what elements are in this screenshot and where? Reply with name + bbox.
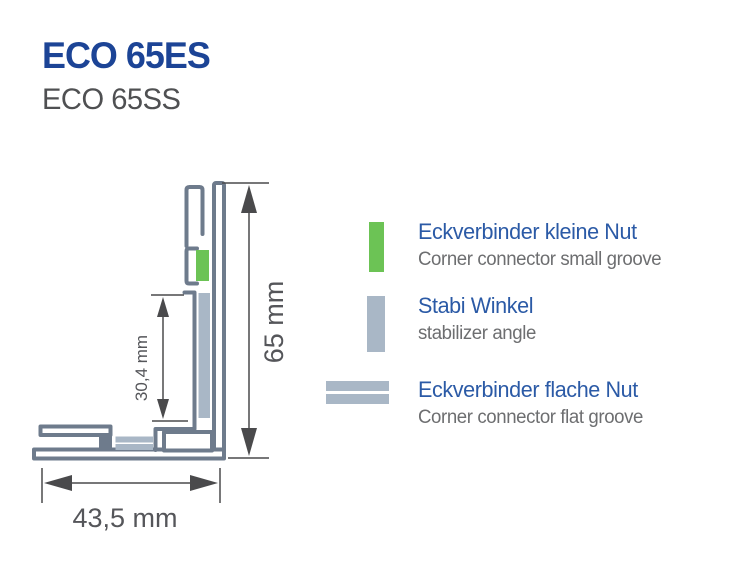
legend-title: Stabi Winkel — [418, 292, 722, 320]
flat-groove-connector-bottom — [116, 444, 154, 450]
profile-right-wall — [214, 183, 224, 458]
profile-small-groove-bracket — [187, 249, 198, 284]
small-groove-connector — [196, 250, 209, 281]
legend-subtitle: Corner connector flat groove — [418, 407, 722, 430]
profile-top-channel — [187, 187, 203, 246]
legend-title: Eckverbinder flache Nut — [418, 376, 722, 404]
flat-groove-connector-swatch — [326, 381, 389, 405]
stabilizer-angle-swatch — [367, 296, 385, 352]
profile-bottom-box — [164, 432, 212, 451]
stabilizer-angle — [199, 293, 211, 418]
dimension-30mm-label: 30,4 mm — [132, 335, 151, 401]
dimension-65mm: 65 mm — [222, 183, 289, 458]
flat-groove-connector-top — [116, 437, 154, 443]
profile-outline — [34, 183, 224, 459]
flat-bar-top — [326, 381, 389, 391]
legend-subtitle: stabilizer angle — [418, 323, 722, 346]
dimension-65mm-label: 65 mm — [259, 281, 289, 364]
small-groove-connector-swatch — [369, 222, 384, 272]
profile-diagram: 65 mm 30,4 mm 43,5 mm — [0, 0, 330, 567]
profile-left-flange — [41, 427, 111, 436]
legend-title: Eckverbinder kleine Nut — [418, 218, 722, 246]
dimension-43mm: 43,5 mm — [42, 468, 220, 533]
flat-bar-bottom — [326, 394, 389, 404]
legend-subtitle: Corner connector small groove — [418, 249, 722, 272]
dimension-43mm-label: 43,5 mm — [72, 503, 177, 533]
dimension-30mm: 30,4 mm — [132, 295, 188, 421]
page: ECO 65ES ECO 65SS — [0, 0, 756, 567]
profile-groove-wall — [185, 293, 195, 430]
